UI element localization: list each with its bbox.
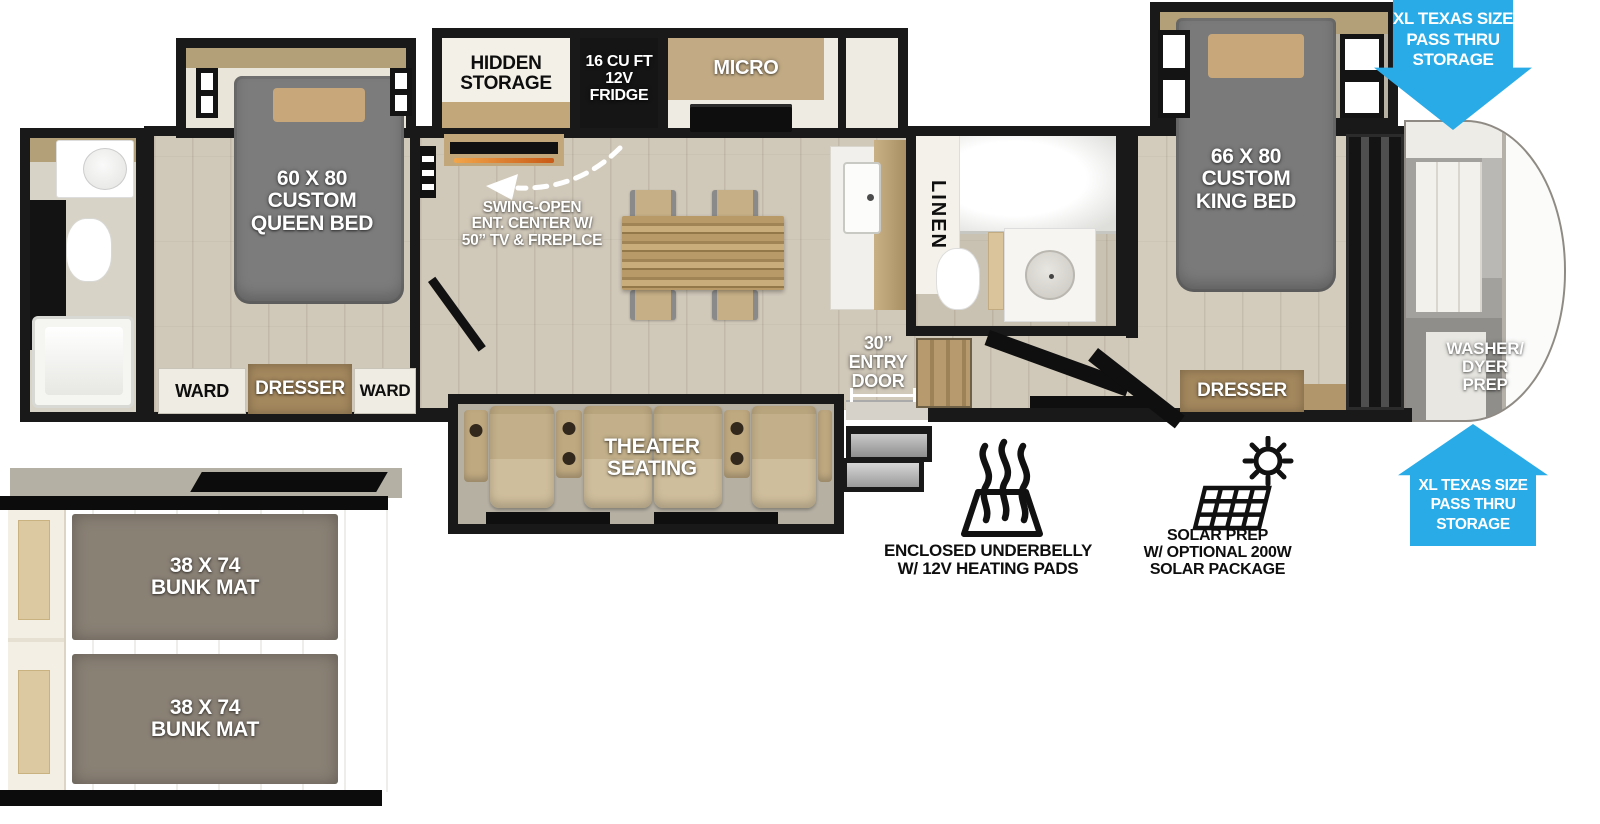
entry-step <box>842 458 924 492</box>
queen-ward-right: WARD <box>354 368 416 414</box>
hidden-storage-label: HIDDEN STORAGE <box>446 54 566 94</box>
solar-prep-icon <box>1190 436 1302 536</box>
queen-window-right-icon <box>390 68 412 116</box>
entry-door-measure-bracket <box>850 388 916 402</box>
king-window-right-icon <box>1340 34 1384 118</box>
king-dresser: DRESSER <box>1180 370 1304 412</box>
rv-floorplan: 60 X 80 CUSTOM QUEEN BED WARD DRESSER WA… <box>0 0 1600 824</box>
bunk-cabinet-door <box>18 520 50 620</box>
rear-bath-sink-bowl-icon <box>83 148 127 190</box>
mid-bath-toilet-icon <box>936 248 980 310</box>
rear-bath-tub-basin <box>45 327 123 395</box>
dining-table <box>622 216 784 290</box>
mid-bathroom: LINEN <box>906 126 1126 336</box>
kitchen-sink-icon <box>843 162 881 234</box>
faucet-dot-icon <box>867 194 874 201</box>
queen-window-left-icon <box>196 68 218 118</box>
rear-bathroom <box>20 128 146 422</box>
floor-shadow <box>486 512 610 524</box>
stair-landing-icon <box>1030 396 1150 408</box>
theater-seat <box>490 406 554 508</box>
bunk-mat-lower: 38 X 74 BUNK MAT <box>72 654 338 784</box>
living-window-icon <box>420 146 436 198</box>
bunk-cabinet-door <box>18 670 50 774</box>
fridge: 16 CU FT 12V FRIDGE <box>580 38 658 128</box>
king-bed-label: 66 X 80 CUSTOM KING BED <box>1158 146 1334 213</box>
bunk-top-vent-icon <box>190 472 388 492</box>
kitchen-slideout: HIDDEN STORAGE 16 CU FT 12V FRIDGE MICRO <box>432 28 908 138</box>
queen-ward-left: WARD <box>158 368 246 414</box>
bunk-cabinet-column <box>8 510 66 792</box>
washer-dryer-prep-label: WASHER/ DYER PREP <box>1430 340 1540 394</box>
heating-pads-icon <box>952 438 1052 540</box>
rear-bath-toilet-icon <box>66 218 112 282</box>
queen-dresser: DRESSER <box>248 364 352 414</box>
wall-divider <box>570 38 580 128</box>
stove-icon <box>690 104 792 132</box>
pocket-door <box>916 338 972 408</box>
wall-divider <box>838 38 846 128</box>
solar-prep-label: SOLAR PREP W/ OPTIONAL 200W SOLAR PACKAG… <box>1105 528 1330 579</box>
bunk-cabinet-seam <box>8 638 64 642</box>
rear-bath-tub <box>32 316 134 408</box>
vanity-drawer <box>988 232 1004 310</box>
king-dresser-label: DRESSER <box>1197 381 1287 401</box>
theater-seat <box>752 406 816 508</box>
dining-chair <box>712 290 758 320</box>
queen-dresser-label: DRESSER <box>255 379 345 399</box>
bottom-wall <box>420 408 456 422</box>
microwave-cabinet: MICRO <box>668 38 824 100</box>
bunk-mat-upper: 38 X 74 BUNK MAT <box>72 514 338 640</box>
hidden-storage-area: HIDDEN STORAGE <box>442 38 570 128</box>
cupholder-icon <box>731 422 744 435</box>
fridge-label: 16 CU FT 12V FRIDGE <box>580 54 658 105</box>
theater-armrest <box>818 410 832 482</box>
theater-armrest <box>464 410 488 482</box>
cupholder-icon <box>563 422 576 435</box>
entry-door-label: 30” ENTRY DOOR <box>838 334 918 391</box>
swing-open-arrow-icon <box>478 140 626 202</box>
queen-bed-pillow <box>273 88 365 122</box>
bunk-room-inset: 38 X 74 BUNK MAT 38 X 74 BUNK MAT <box>0 468 408 808</box>
pass-thru-rear-label: XL TEXAS SIZE PASS THRU STORAGE <box>1398 476 1548 534</box>
bunk-bottom-wall <box>0 790 382 806</box>
mid-bath-vanity <box>1004 228 1096 322</box>
pass-thru-arrow-up: XL TEXAS SIZE PASS THRU STORAGE <box>1398 424 1548 546</box>
king-bed-pillow <box>1208 34 1304 78</box>
vanity-sink-bowl-icon <box>1025 250 1075 300</box>
drain-dot-icon <box>1049 274 1054 279</box>
king-bedroom-left-wall <box>1126 126 1138 338</box>
micro-label: MICRO <box>668 58 824 79</box>
shower <box>960 136 1116 234</box>
hidden-storage-shelf <box>442 102 570 128</box>
cupholder-icon <box>470 424 483 437</box>
underbelly-label: ENCLOSED UNDERBELLY W/ 12V HEATING PADS <box>868 542 1108 578</box>
queen-slide-headboard-shelf <box>186 48 406 68</box>
queen-ward-left-label: WARD <box>175 382 229 401</box>
wall-divider <box>658 38 668 128</box>
queen-bed-label: 60 X 80 CUSTOM QUEEN BED <box>222 168 402 235</box>
queen-ward-right-label: WARD <box>360 382 411 400</box>
floor-shadow <box>654 512 778 524</box>
bunk-top-wall <box>0 496 388 510</box>
pass-thru-front-label: XL TEXAS SIZE PASS THRU STORAGE <box>1374 9 1532 71</box>
king-window-left-icon <box>1158 30 1190 118</box>
top-wall-joint <box>410 126 436 138</box>
rear-bath-sink-counter <box>56 140 134 198</box>
bunk-mat-upper-label: 38 X 74 BUNK MAT <box>151 555 259 599</box>
dining-chair <box>630 290 676 320</box>
ent-center-label: SWING-OPEN ENT. CENTER W/ 50” TV & FIREP… <box>443 200 621 249</box>
entry-step <box>846 426 932 462</box>
linen-label: LINEN <box>926 180 949 250</box>
bunk-mat-lower-label: 38 X 74 BUNK MAT <box>151 697 259 741</box>
king-closet-slats <box>1346 134 1404 410</box>
front-wardrobe-panel <box>1416 162 1482 312</box>
theater-seating-label: THEATER SEATING <box>562 436 742 481</box>
